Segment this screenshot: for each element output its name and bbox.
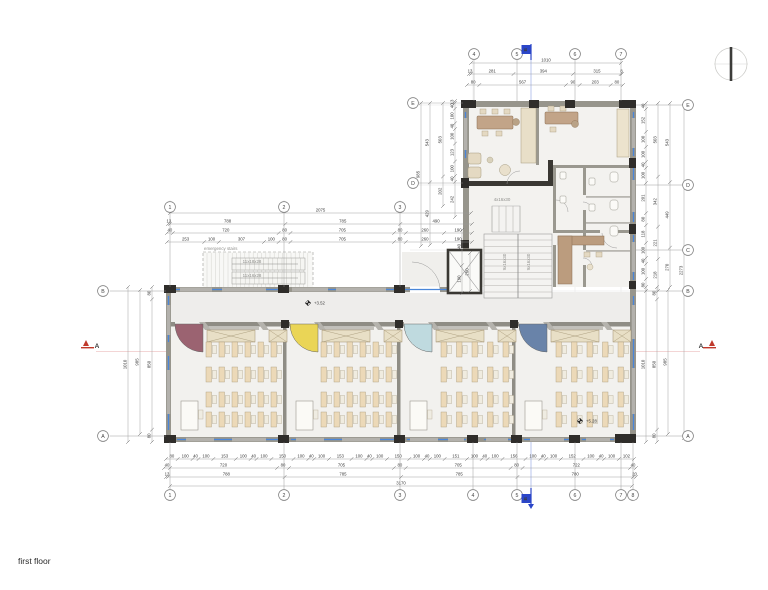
grid-bubble-label: 6 xyxy=(574,52,577,58)
teacher-chair xyxy=(199,410,204,419)
dimension-label: 543 xyxy=(424,138,429,146)
student-chair xyxy=(578,371,582,379)
floor-plan-drawing: emergency stairs 11x18x28 11x16x28 xyxy=(0,0,768,590)
elevation-marker-classroom4: +5.28 xyxy=(577,418,597,424)
dimension-label: 80 xyxy=(170,454,175,459)
dimension-label: 40 xyxy=(640,258,645,263)
student-desk xyxy=(572,342,578,357)
student-desk xyxy=(232,367,238,382)
dimension-label: 40 xyxy=(251,454,256,459)
grid-bubble-label: 6 xyxy=(574,493,577,499)
student-chair xyxy=(494,346,498,354)
dimension-label: 705 xyxy=(339,237,347,242)
closet xyxy=(521,108,536,163)
grid-bubble-label: 2 xyxy=(283,493,286,499)
student-desk xyxy=(472,412,478,427)
dimension-label: 2273 xyxy=(678,265,683,275)
dimension-label: 202 xyxy=(437,187,442,195)
window-sill xyxy=(632,118,635,148)
structural-column xyxy=(629,281,636,289)
student-desk xyxy=(206,412,212,427)
student-desk xyxy=(441,392,447,407)
student-desk xyxy=(347,367,353,382)
window-sill xyxy=(342,438,380,442)
dimension-label: 100 xyxy=(492,454,500,459)
section-marker-b-bottom: B xyxy=(522,488,535,509)
student-chair xyxy=(366,416,370,424)
dimension-label: 40 xyxy=(541,454,546,459)
dimension-label: 80 xyxy=(471,80,476,85)
dimension-label: 429 xyxy=(424,209,429,217)
dimension-label: 100 xyxy=(208,237,216,242)
dimension-label: 850 xyxy=(651,360,656,368)
dimension-label: 785 xyxy=(339,219,347,224)
dimension-label: 720 xyxy=(220,463,228,468)
student-desk xyxy=(258,392,264,407)
student-chair xyxy=(478,396,482,404)
dimension-label: 985 xyxy=(415,170,420,178)
window-sill xyxy=(448,438,464,442)
grid-bubble-label: C xyxy=(686,248,690,254)
teacher-desk xyxy=(525,401,542,430)
student-desk xyxy=(488,342,494,357)
dimension-label: 722 xyxy=(573,463,581,468)
student-chair xyxy=(251,371,255,379)
student-chair xyxy=(624,416,628,424)
student-desk xyxy=(603,367,609,382)
student-chair xyxy=(562,396,566,404)
emergency-flight-top-label: 11x18x28 xyxy=(243,259,262,264)
dimension-label: 40 xyxy=(367,454,372,459)
student-desk xyxy=(258,367,264,382)
dimension-label: 40 xyxy=(449,103,454,108)
student-chair xyxy=(225,346,229,354)
structural-column xyxy=(565,100,575,108)
dimension-label: 40 xyxy=(640,103,645,108)
student-chair xyxy=(277,371,281,379)
dimension-label: 152 xyxy=(569,454,577,459)
dimension-chain: 503342221218 xyxy=(652,101,659,293)
dimension-label: 720 xyxy=(222,228,230,233)
student-desk xyxy=(503,392,509,407)
student-desk xyxy=(206,367,212,382)
dimension-label: 342 xyxy=(652,197,657,205)
dimension-label: 100 xyxy=(587,454,595,459)
elevation-classroom4-value: +5.28 xyxy=(586,419,597,424)
dimension-label: 315 xyxy=(593,69,601,74)
student-desk xyxy=(503,342,509,357)
student-chair xyxy=(277,416,281,424)
student-desk xyxy=(360,367,366,382)
dimension-label: 151 xyxy=(452,454,460,459)
student-chair xyxy=(251,396,255,404)
dimension-chain: 1010 xyxy=(469,58,623,65)
dimension-label: 503 xyxy=(652,136,657,144)
dimension-label: 80 xyxy=(398,228,403,233)
student-chair xyxy=(392,396,396,404)
student-chair xyxy=(447,396,451,404)
dimension-label: 100 xyxy=(297,454,305,459)
student-desk xyxy=(271,412,277,427)
student-desk xyxy=(587,392,593,407)
hall-stair-label: 4x16x30 xyxy=(494,197,511,202)
student-desk xyxy=(603,412,609,427)
dimension-chain: 407208070580260190 xyxy=(165,228,474,235)
student-chair xyxy=(366,396,370,404)
window-sill xyxy=(632,368,635,414)
dimension-label: 2075 xyxy=(316,208,326,213)
dimension-label: 788 xyxy=(224,219,232,224)
dimension-label: 40 xyxy=(168,228,173,233)
window-sill xyxy=(530,438,564,442)
teacher-desk xyxy=(410,401,427,430)
student-chair xyxy=(264,346,268,354)
teacher-chair xyxy=(428,410,433,419)
student-chair xyxy=(609,416,613,424)
student-desk xyxy=(360,342,366,357)
student-chair xyxy=(212,346,216,354)
corridor-floor xyxy=(171,292,631,322)
window-sill xyxy=(632,305,635,339)
dimension-label: 394 xyxy=(540,69,548,74)
dimension-label: 281 xyxy=(489,69,497,74)
dimension-label: 8 xyxy=(620,69,623,74)
dimension-label: 260 xyxy=(421,228,429,233)
student-desk xyxy=(347,412,353,427)
dimension-label: 102 xyxy=(623,454,631,459)
dimension-label: 985 xyxy=(134,358,139,366)
student-desk xyxy=(556,392,562,407)
grid-bubble-label: 4 xyxy=(473,52,476,58)
student-desk xyxy=(219,342,225,357)
dimension-label: 850 xyxy=(146,360,151,368)
student-chair xyxy=(463,416,467,424)
structural-column xyxy=(629,224,636,234)
student-desk xyxy=(219,392,225,407)
dimension-label: 100 xyxy=(449,112,454,120)
grid-bubble-label: A xyxy=(101,434,105,440)
student-desk xyxy=(618,367,624,382)
dimension-label: 100 xyxy=(640,171,645,179)
dimension-label: 123 xyxy=(449,148,454,156)
dimension-chain: 985 xyxy=(662,288,669,436)
structural-column xyxy=(461,100,476,108)
student-desk xyxy=(232,342,238,357)
grid-bubble-label: 8 xyxy=(632,493,635,499)
student-chair xyxy=(277,346,281,354)
student-desk xyxy=(472,392,478,407)
teacher-chair xyxy=(543,410,548,419)
student-desk xyxy=(321,392,327,407)
dimension-label: 40 xyxy=(599,454,604,459)
student-chair xyxy=(463,346,467,354)
grid-bubble-label: 5 xyxy=(516,493,519,499)
student-chair xyxy=(509,416,513,424)
structural-column xyxy=(569,435,580,443)
student-desk xyxy=(360,412,366,427)
student-chair xyxy=(509,371,513,379)
dimension-chain: 3170 xyxy=(168,481,634,488)
student-chair xyxy=(624,396,628,404)
window-sill xyxy=(167,370,170,414)
student-desk xyxy=(556,342,562,357)
dimension-label: 100 xyxy=(355,454,363,459)
flight-left-label: 9x16x30 xyxy=(502,253,507,270)
student-desk xyxy=(618,342,624,357)
dimension-label: 100 xyxy=(449,165,454,173)
structural-column xyxy=(164,435,176,443)
student-desk xyxy=(321,367,327,382)
window-sill xyxy=(586,438,610,442)
dimension-label: 80 xyxy=(282,228,287,233)
dimension-label: 40 xyxy=(165,463,170,468)
vestibule-wall xyxy=(549,327,603,330)
student-desk xyxy=(373,342,379,357)
grid-bubble-label: 7 xyxy=(620,493,623,499)
structural-column xyxy=(511,435,522,443)
student-desk xyxy=(457,392,463,407)
student-desk xyxy=(572,367,578,382)
structural-column xyxy=(510,320,518,328)
student-desk xyxy=(556,367,562,382)
dimension-label: 153 xyxy=(221,454,229,459)
student-desk xyxy=(245,342,251,357)
student-chair xyxy=(327,416,331,424)
student-desk xyxy=(457,367,463,382)
dimension-label: 190 xyxy=(456,275,461,283)
student-desk xyxy=(321,412,327,427)
structural-column xyxy=(615,434,636,443)
dimension-label: 543 xyxy=(664,138,669,146)
student-desk xyxy=(488,367,494,382)
dimension-label: 80 xyxy=(614,80,619,85)
window-sill xyxy=(336,288,386,292)
window-sill xyxy=(486,438,508,442)
dimension-label: 100 xyxy=(529,454,537,459)
dimension-chain: 2531003071008070580260190 xyxy=(165,237,474,244)
student-chair xyxy=(624,371,628,379)
dimension-chain: 1010 xyxy=(640,285,647,444)
dimension-chain: 543449270 xyxy=(664,101,671,289)
grid-bubble-label: E xyxy=(411,101,415,107)
dimension-chain: 805679020380 xyxy=(465,80,625,87)
dimension-label: 80 xyxy=(398,237,403,242)
dimension-label: 150 xyxy=(395,454,403,459)
dimension-label: 100 xyxy=(260,454,268,459)
dimension-label: 100 xyxy=(376,454,384,459)
dimension-label: 118 xyxy=(640,230,645,237)
window-sill xyxy=(632,242,635,272)
student-desk xyxy=(386,412,392,427)
student-desk xyxy=(386,342,392,357)
student-desk xyxy=(271,392,277,407)
section-marker-a-left: A xyxy=(81,340,100,350)
student-desk xyxy=(334,412,340,427)
structural-column xyxy=(629,158,636,168)
structural-column xyxy=(467,435,478,443)
dimension-label: 40 xyxy=(193,454,198,459)
student-desk xyxy=(503,367,509,382)
student-desk xyxy=(334,392,340,407)
dimension-label: 80 xyxy=(282,237,287,242)
student-desk xyxy=(347,392,353,407)
dimension-chain: 8085080 xyxy=(146,285,153,444)
dimension-label: 100 xyxy=(449,132,454,140)
student-desk xyxy=(334,342,340,357)
student-chair xyxy=(609,346,613,354)
dimension-label: 190 xyxy=(454,228,462,233)
student-chair xyxy=(238,416,242,424)
dimension-label: 40 xyxy=(482,454,487,459)
student-chair xyxy=(379,416,383,424)
dimension-label: 100 xyxy=(434,454,442,459)
student-desk xyxy=(386,367,392,382)
dimension-label: 100 xyxy=(202,454,210,459)
window-sill xyxy=(464,118,467,150)
dimension-label: 40 xyxy=(449,176,454,181)
structural-column xyxy=(395,320,403,328)
student-desk xyxy=(472,367,478,382)
student-desk xyxy=(347,342,353,357)
student-chair xyxy=(251,346,255,354)
structural-column xyxy=(394,435,405,443)
student-chair xyxy=(353,371,357,379)
student-chair xyxy=(509,396,513,404)
student-desk xyxy=(232,412,238,427)
student-chair xyxy=(225,416,229,424)
dimension-label: 40 xyxy=(309,454,314,459)
dimension-label: 307 xyxy=(238,237,246,242)
vestibule-wall xyxy=(205,327,259,330)
dimension-label: 100 xyxy=(608,454,616,459)
student-desk xyxy=(618,412,624,427)
grid-bubble-label: 3 xyxy=(399,205,402,211)
dimension-label: 1010 xyxy=(640,359,645,369)
dimension-chain: 985 xyxy=(415,101,422,248)
teacher-chair xyxy=(314,410,319,419)
dimension-label: 449 xyxy=(664,211,669,219)
vestibule-wall xyxy=(320,327,374,330)
dimension-label: 100 xyxy=(182,454,190,459)
dimension-label: 985 xyxy=(662,358,667,366)
student-desk xyxy=(206,342,212,357)
student-chair xyxy=(562,371,566,379)
dimension-label: 100 xyxy=(640,135,645,143)
grid-bubble-label: 2 xyxy=(283,205,286,211)
structural-column xyxy=(278,285,289,293)
student-chair xyxy=(212,416,216,424)
section-a-letter: A xyxy=(95,343,100,350)
dimension-label: 153 xyxy=(337,454,345,459)
dimension-label: 40 xyxy=(640,162,645,167)
dimension-label: 80 xyxy=(281,463,286,468)
student-desk xyxy=(271,367,277,382)
dimension-label: 80 xyxy=(146,433,151,438)
section-marker-b-top: B xyxy=(522,44,532,60)
dimension-label: 490 xyxy=(433,219,441,224)
student-desk xyxy=(386,392,392,407)
student-chair xyxy=(277,396,281,404)
student-desk xyxy=(488,392,494,407)
student-chair xyxy=(478,346,482,354)
student-desk xyxy=(618,392,624,407)
dimension-label: 150 xyxy=(279,454,287,459)
student-chair xyxy=(238,396,242,404)
student-desk xyxy=(441,412,447,427)
student-desk xyxy=(360,392,366,407)
student-desk xyxy=(334,367,340,382)
grid-bubble-label: B xyxy=(686,289,690,295)
dimension-label: 240 xyxy=(456,243,461,251)
student-chair xyxy=(340,371,344,379)
dimension-label: 218 xyxy=(652,271,657,279)
dimension-chain: 2273 xyxy=(678,101,685,440)
flight-right-label: 9x16x30 xyxy=(526,253,531,270)
student-chair xyxy=(353,346,357,354)
dimension-chain: 985 xyxy=(134,288,141,436)
student-desk xyxy=(572,412,578,427)
grid-bubble-label: A xyxy=(686,434,690,440)
dimension-label: 242 xyxy=(449,195,454,203)
student-chair xyxy=(578,346,582,354)
dimension-label: 100 xyxy=(240,454,248,459)
student-chair xyxy=(340,396,344,404)
grid-bubble-label: 3 xyxy=(399,493,402,499)
student-chair xyxy=(463,396,467,404)
student-chair xyxy=(509,346,513,354)
student-chair xyxy=(447,416,451,424)
student-chair xyxy=(327,371,331,379)
student-chair xyxy=(366,371,370,379)
grid-bubble-label: 5 xyxy=(516,52,519,58)
structural-column xyxy=(278,435,289,443)
student-desk xyxy=(232,392,238,407)
dimension-label: 80 xyxy=(640,216,645,221)
dimension-label: 100 xyxy=(550,454,558,459)
student-chair xyxy=(494,396,498,404)
student-desk xyxy=(373,367,379,382)
dimension-label: 1010 xyxy=(122,359,127,369)
student-desk xyxy=(441,367,447,382)
teacher-desk xyxy=(296,401,313,430)
dimension-label: 253 xyxy=(182,237,190,242)
dimension-label: 190 xyxy=(454,237,462,242)
dimension-label: 503 xyxy=(437,136,442,144)
student-desk xyxy=(556,412,562,427)
student-desk xyxy=(321,342,327,357)
student-desk xyxy=(603,342,609,357)
student-chair xyxy=(366,346,370,354)
dimension-label: 100 xyxy=(318,454,326,459)
student-chair xyxy=(463,371,467,379)
dimension-chain: 503202 xyxy=(437,101,444,208)
grid-bubble-label: 1 xyxy=(169,205,172,211)
student-desk xyxy=(245,367,251,382)
student-desk xyxy=(457,412,463,427)
student-chair xyxy=(379,346,383,354)
dimension-chain: 8085080 xyxy=(651,285,658,444)
dimension-label: 785 xyxy=(339,472,347,477)
dimension-chain: 132813943158 xyxy=(467,69,624,76)
student-chair xyxy=(624,346,628,354)
section-marker-a-right: A xyxy=(699,340,716,350)
student-desk xyxy=(271,342,277,357)
window-sill xyxy=(632,180,635,212)
dimension-chain: 543429 xyxy=(424,101,431,247)
student-chair xyxy=(340,346,344,354)
window-sill xyxy=(222,288,266,292)
dimension-label: 788 xyxy=(223,472,231,477)
